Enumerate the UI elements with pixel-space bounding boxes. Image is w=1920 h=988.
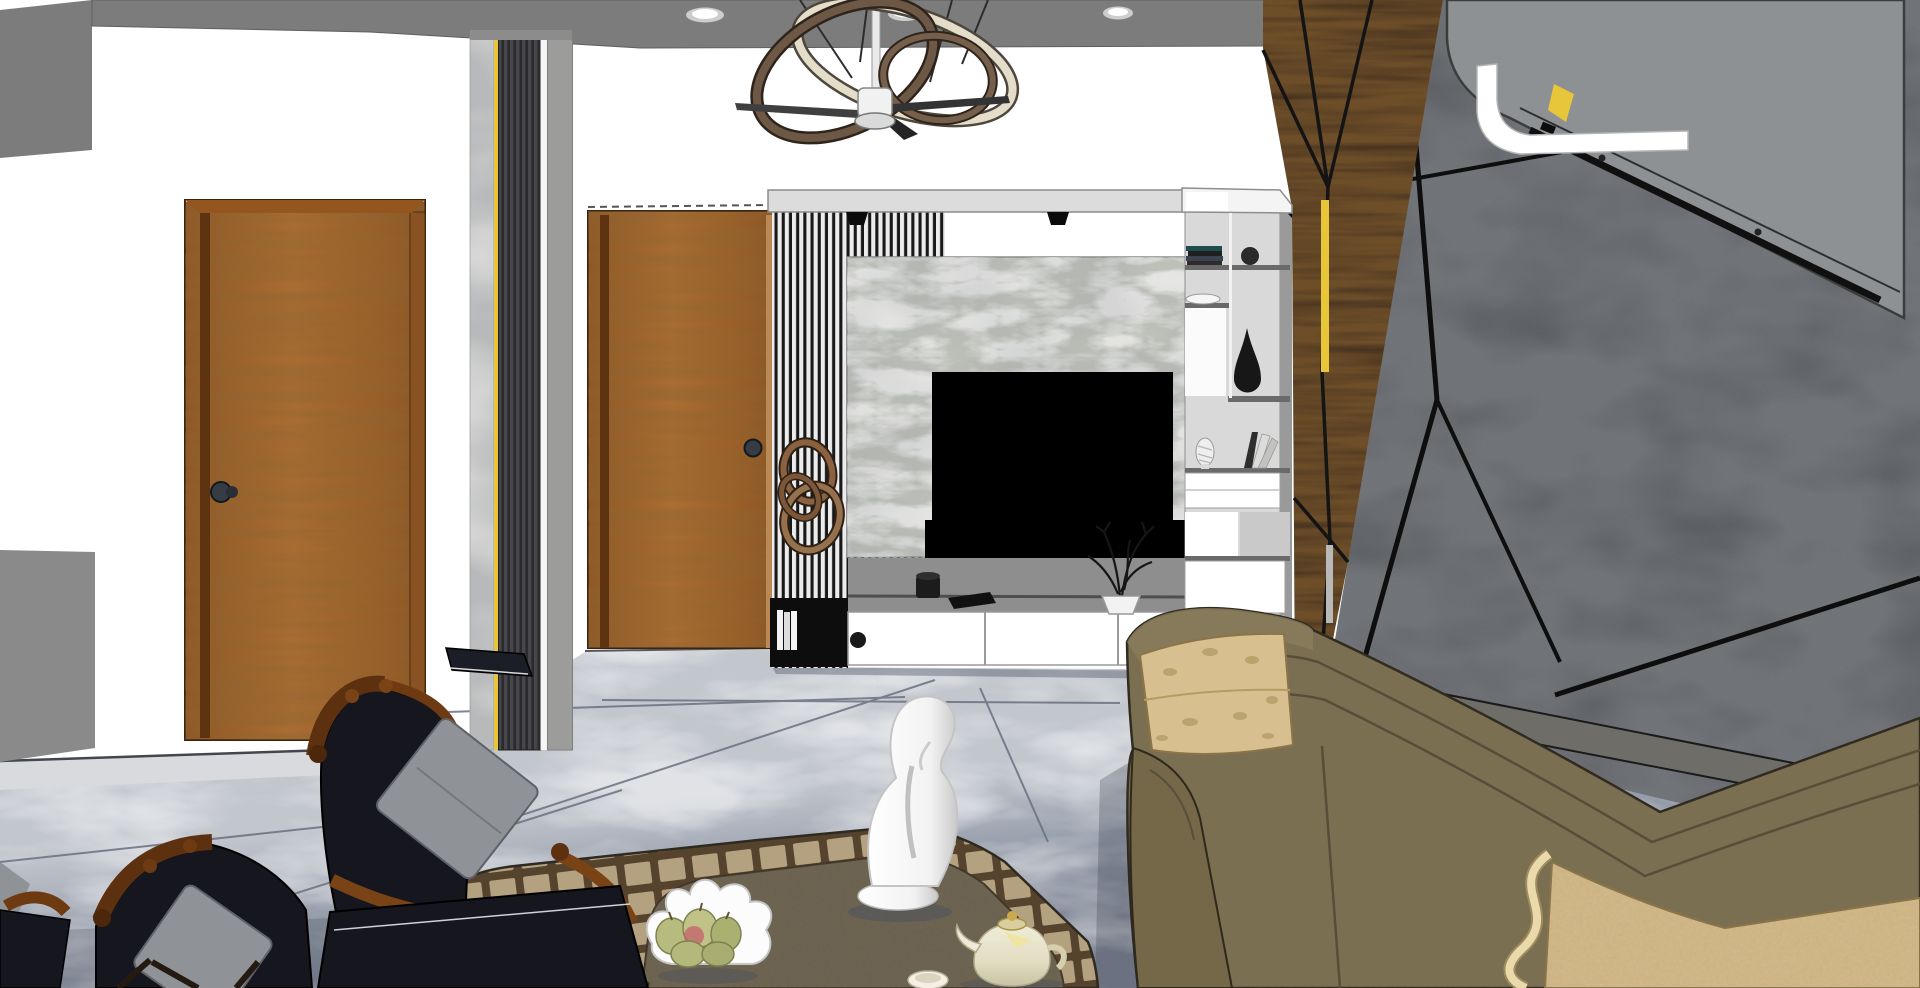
- plant-pot: [1102, 596, 1140, 614]
- door-left: [185, 200, 425, 740]
- silver-strip: [1326, 545, 1333, 623]
- door-center-knob: [745, 440, 762, 457]
- door-center: [588, 205, 775, 648]
- pillar-fluted-strip: [499, 38, 541, 750]
- ceiling-corner-wedge: [0, 0, 92, 158]
- cabinet-books: [777, 610, 797, 650]
- pillar-strips: [470, 30, 573, 750]
- shelf-bowl: [1186, 294, 1220, 304]
- gold-strip: [1321, 200, 1329, 372]
- pillar-gold-strip: [494, 38, 499, 750]
- cabinet-knob: [850, 632, 866, 648]
- shelf-books-stack: [1186, 246, 1223, 265]
- tv-niche: [925, 520, 1185, 558]
- cornice: [768, 190, 1185, 212]
- shelf-sphere: [1241, 247, 1259, 265]
- interior-render: 3D SketchUp-style rendering of a modern …: [0, 0, 1920, 988]
- pillar-gray-marble: [548, 38, 573, 750]
- door-left-hinge-gap: [200, 212, 210, 738]
- render-canvas: [0, 0, 1920, 988]
- left-wall-edge: [0, 550, 95, 762]
- tv-screen: [932, 372, 1173, 520]
